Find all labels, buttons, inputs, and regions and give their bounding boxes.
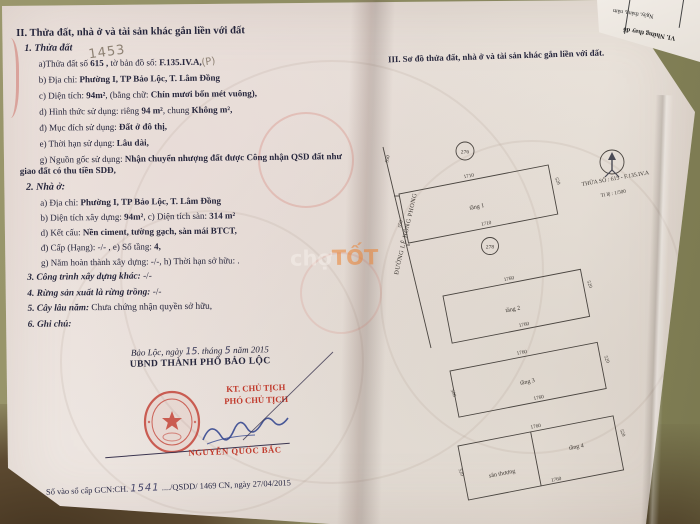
field-house-area: b) Diện tích xây dựng: 94m², c) Diện tíc… bbox=[40, 209, 352, 224]
dim-r2-top: 1760 bbox=[503, 275, 515, 283]
field-area: c) Diện tích: 94m², (bằng chữ: Chín mươi… bbox=[39, 87, 351, 102]
field-parcel-number: a)Thửa đất số 615 , tờ bản đồ số: F.135.… bbox=[39, 55, 351, 70]
fold-section-vi-heading: VI. Những thay đổ bbox=[623, 25, 676, 41]
photo-of-land-certificate: II. Thửa đất, nhà ở và tài sản khác gắn … bbox=[0, 0, 700, 524]
watermark-word-1: chợ bbox=[290, 246, 332, 271]
parcel-278-label: 278 bbox=[486, 245, 495, 251]
section-6-line: 6. Ghi chú: bbox=[28, 315, 354, 330]
floor-2-label: tầng 2 bbox=[505, 305, 521, 315]
floor-4-divider bbox=[531, 432, 541, 486]
floor-1-label: tầng 1 bbox=[469, 202, 485, 212]
dim-r4-right: 520 bbox=[618, 429, 626, 438]
road-line bbox=[383, 147, 431, 348]
parcel-diagram: ĐƯỜNG LÊ HỒNG PHONG 550 550 276 278 1710… bbox=[358, 118, 700, 524]
floor-1-rect: 1710 tầng 1 1710 520 bbox=[398, 157, 566, 244]
left-page: II. Thửa đất, nhà ở và tài sản khác gắn … bbox=[14, 24, 354, 335]
floor-3-rect: 1760 tầng 3 1760 520 500 bbox=[444, 334, 615, 418]
section-5-line: 5. Cây lâu năm: Chưa chứng nhận quyền sở… bbox=[28, 300, 354, 315]
section-4-line: 4. Rừng sản xuất là rừng trồng: -/- bbox=[27, 284, 353, 299]
dim-550-top: 550 bbox=[385, 155, 392, 164]
dim-r1-top: 1710 bbox=[463, 172, 475, 180]
sheet-number-label: THỬA SỐ : 615 - F.135.IV.A bbox=[581, 168, 650, 188]
field-house-structure: d) Kết cấu: Nền ciment, tường gạch, sàn … bbox=[41, 224, 353, 239]
field-use-purpose: đ) Mục đích sử dụng: Đất ở đô thị, bbox=[39, 119, 351, 134]
section-1-title: 1. Thửa đất bbox=[24, 39, 350, 54]
field-address: b) Địa chỉ: Phường I, TP Bảo Lộc, T. Lâm… bbox=[39, 71, 351, 86]
parcel-276-label: 276 bbox=[461, 150, 470, 156]
roof-terrace-label: sân thượng bbox=[489, 469, 516, 480]
section-3-line: 3. Công trình xây dựng khác: -/- bbox=[27, 269, 353, 284]
dim-r2-bottom: 1760 bbox=[518, 321, 530, 329]
dim-r4-top: 1760 bbox=[530, 423, 542, 431]
handwritten-signature bbox=[185, 344, 340, 456]
watermark-word-2: TỐT bbox=[332, 245, 379, 270]
dim-r3-top: 1760 bbox=[516, 349, 528, 357]
dim-r4-bottom: 1760 bbox=[551, 476, 563, 484]
floor-4-label: tầng 4 bbox=[568, 442, 584, 452]
fold-table-border bbox=[679, 0, 685, 28]
dim-r2-right: 520 bbox=[585, 280, 593, 289]
dim-r1-bottom: 1710 bbox=[481, 220, 493, 228]
field-use-form: d) Hình thức sử dụng: riêng 94 m², chung… bbox=[39, 103, 351, 118]
floor-3-label: tầng 3 bbox=[520, 377, 536, 387]
chotot-watermark: chợTỐT bbox=[290, 245, 379, 271]
field-use-origin: g) Nguồn gốc sử dụng: Nhận chuyển nhượng… bbox=[20, 151, 352, 177]
field-house-address: a) Địa chỉ: Phường I, TP Bảo Lộc, T. Lâm… bbox=[40, 194, 352, 209]
floor-4-rect: 1760 tầng 4 sân thượng 1760 520 520 bbox=[451, 407, 632, 501]
floor-2-rect: 1760 tầng 2 1760 520 bbox=[442, 261, 598, 343]
field-use-term: e) Thời hạn sử dụng: Lâu dài, bbox=[39, 135, 351, 150]
scale-label: Tỉ lệ : 1/500 bbox=[600, 189, 627, 199]
dim-r1-right: 520 bbox=[553, 177, 561, 186]
north-arrow-icon bbox=[600, 150, 624, 177]
road-name-label: ĐƯỜNG LÊ HỒNG PHONG bbox=[392, 192, 419, 275]
dim-r3-right: 520 bbox=[602, 355, 610, 364]
section-2-title: 2. Nhà ở: bbox=[26, 178, 352, 193]
fold-column-header: Ngày, tháng, năm bbox=[613, 7, 654, 19]
